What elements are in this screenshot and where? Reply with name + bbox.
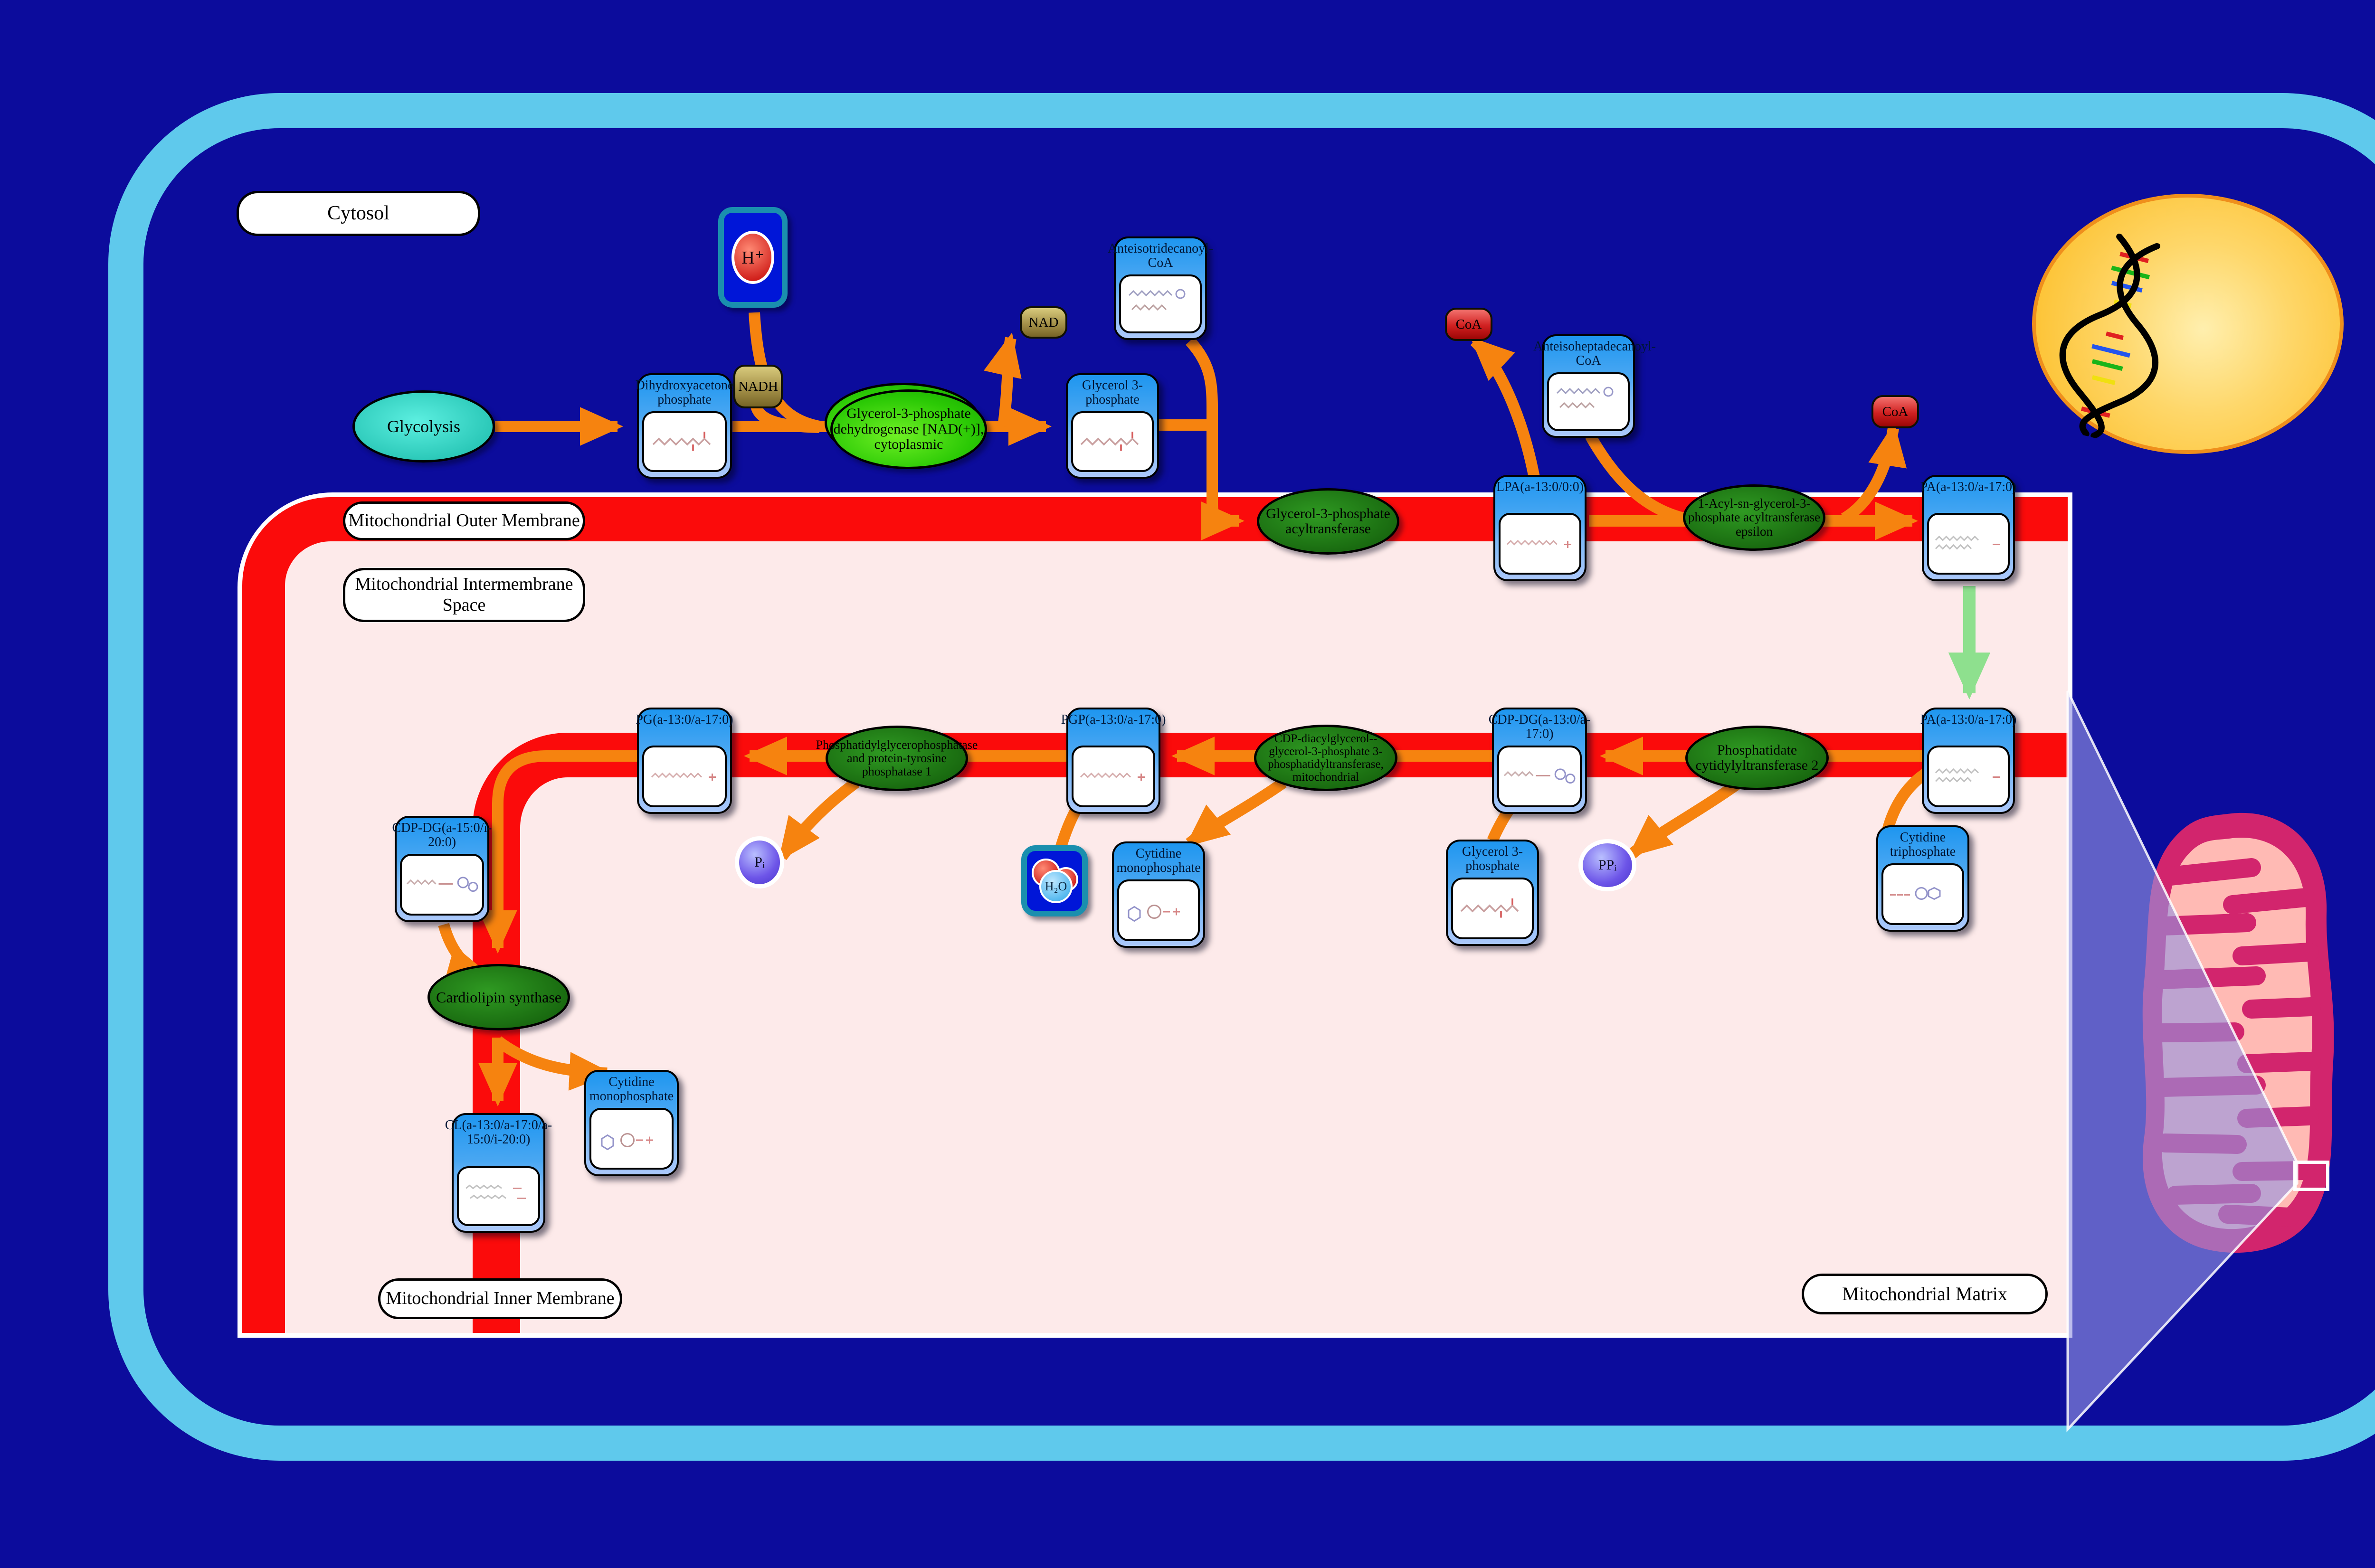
structure-thumbnail [1933, 764, 2004, 789]
node-cdp-dg-2[interactable]: CDP-DG(a-15:0/i-20:0) [395, 816, 489, 922]
node-cl[interactable]: CL(a-13:0/a-17:0/a-15:0/i-20:0) [452, 1113, 545, 1233]
structure-thumbnail [1501, 764, 1577, 789]
label-matrix: Mitochondrial Matrix [1802, 1274, 2048, 1314]
node-h2o[interactable]: H₂O [1021, 845, 1088, 916]
structure-thumbnail [1077, 429, 1148, 454]
enzyme-cds2[interactable]: Phosphatidate cytidylyltransferase 2 [1685, 726, 1829, 790]
label-outer-membrane: Mitochondrial Outer Membrane [343, 501, 585, 540]
enzyme-gpat[interactable]: Glycerol-3-phosphate acyltransferase [1257, 488, 1399, 555]
structure-thumbnail [1504, 534, 1576, 553]
structure-thumbnail [1887, 882, 1958, 907]
enzyme-gpd1[interactable]: Glycerol-3-phosphate dehydrogenase [NAD(… [830, 389, 987, 469]
structure-thumbnail [596, 1124, 667, 1153]
pathway-node-glycolysis[interactable]: Glycolysis [352, 390, 495, 463]
enzyme-ptpmt1[interactable]: Phosphatidylglycerophosphatase and prote… [826, 726, 968, 791]
node-coa-1[interactable]: CoA [1445, 308, 1492, 341]
node-lpa[interactable]: LPA(a-13:0/0:0) [1493, 475, 1586, 581]
node-anteisoheptadecanoyl-coa[interactable]: Anteisoheptadecanoyl-CoA [1542, 334, 1635, 438]
pathway-diagram: Cytosol Mitochondrial Outer Membrane Mit… [0, 0, 2375, 1568]
node-pg[interactable]: PG(a-13:0/a-17:0) [637, 708, 732, 814]
node-pi[interactable]: Pᵢ [739, 841, 780, 884]
node-nad[interactable]: NAD [1020, 306, 1067, 339]
node-cmp-ims[interactable]: Cytidine monophosphate [1112, 841, 1205, 948]
node-nadh[interactable]: NADH [733, 365, 783, 408]
node-coa-2[interactable]: CoA [1871, 395, 1919, 428]
node-pgp[interactable]: PGP(a-13:0/a-17:0) [1066, 708, 1160, 814]
structure-thumbnail [1457, 896, 1528, 921]
structure-thumbnail [1078, 767, 1149, 786]
node-g3p-ims[interactable]: Glycerol 3-phosphate [1446, 840, 1539, 946]
node-cmp-matrix[interactable]: Cytidine monophosphate [584, 1070, 679, 1176]
structure-thumbnail [1933, 531, 2004, 556]
node-h-plus[interactable]: H⁺ [718, 207, 788, 308]
structure-thumbnail [404, 872, 480, 897]
label-cytosol: Cytosol [237, 191, 480, 236]
enzyme-agpat-epsilon[interactable]: 1-Acyl-sn-glycerol-3-phosphate acyltrans… [1683, 484, 1825, 551]
node-dhap[interactable]: Dihydroxyacetone phosphate [637, 373, 732, 479]
structure-thumbnail [1123, 896, 1194, 925]
structure-thumbnail [463, 1180, 534, 1213]
node-g3p-cytosol[interactable]: Glycerol 3-phosphate [1066, 373, 1159, 479]
water-molecule-icon: H₂O [1039, 870, 1073, 903]
enzyme-cls[interactable]: Cardiolipin synthase [427, 964, 570, 1030]
node-cdp-dg[interactable]: CDP-DG(a-13:0/a-17:0) [1492, 708, 1587, 814]
label-intermembrane-space: Mitochondrial Intermembrane Space [343, 568, 585, 622]
node-ppi[interactable]: PPᵢ [1583, 843, 1632, 887]
label-inner-membrane: Mitochondrial Inner Membrane [378, 1278, 622, 1319]
node-ctp[interactable]: Cytidine triphosphate [1876, 825, 1969, 932]
structure-thumbnail [649, 429, 720, 454]
enzyme-pgs1[interactable]: CDP-diacylglycerol--glycerol-3-phosphate… [1254, 725, 1397, 791]
structure-thumbnail [1125, 285, 1196, 323]
node-pa-inner[interactable]: PA(a-13:0/a-17:0) [1922, 708, 2015, 814]
h-plus-icon: H⁺ [731, 231, 774, 284]
structure-thumbnail [1553, 383, 1624, 421]
node-anteisotridecanoyl-coa[interactable]: Anteisotridecanoyl-CoA [1114, 236, 1207, 340]
structure-thumbnail [649, 767, 720, 786]
node-pa-outer[interactable]: PA(a-13:0/a-17:0) [1922, 475, 2015, 581]
